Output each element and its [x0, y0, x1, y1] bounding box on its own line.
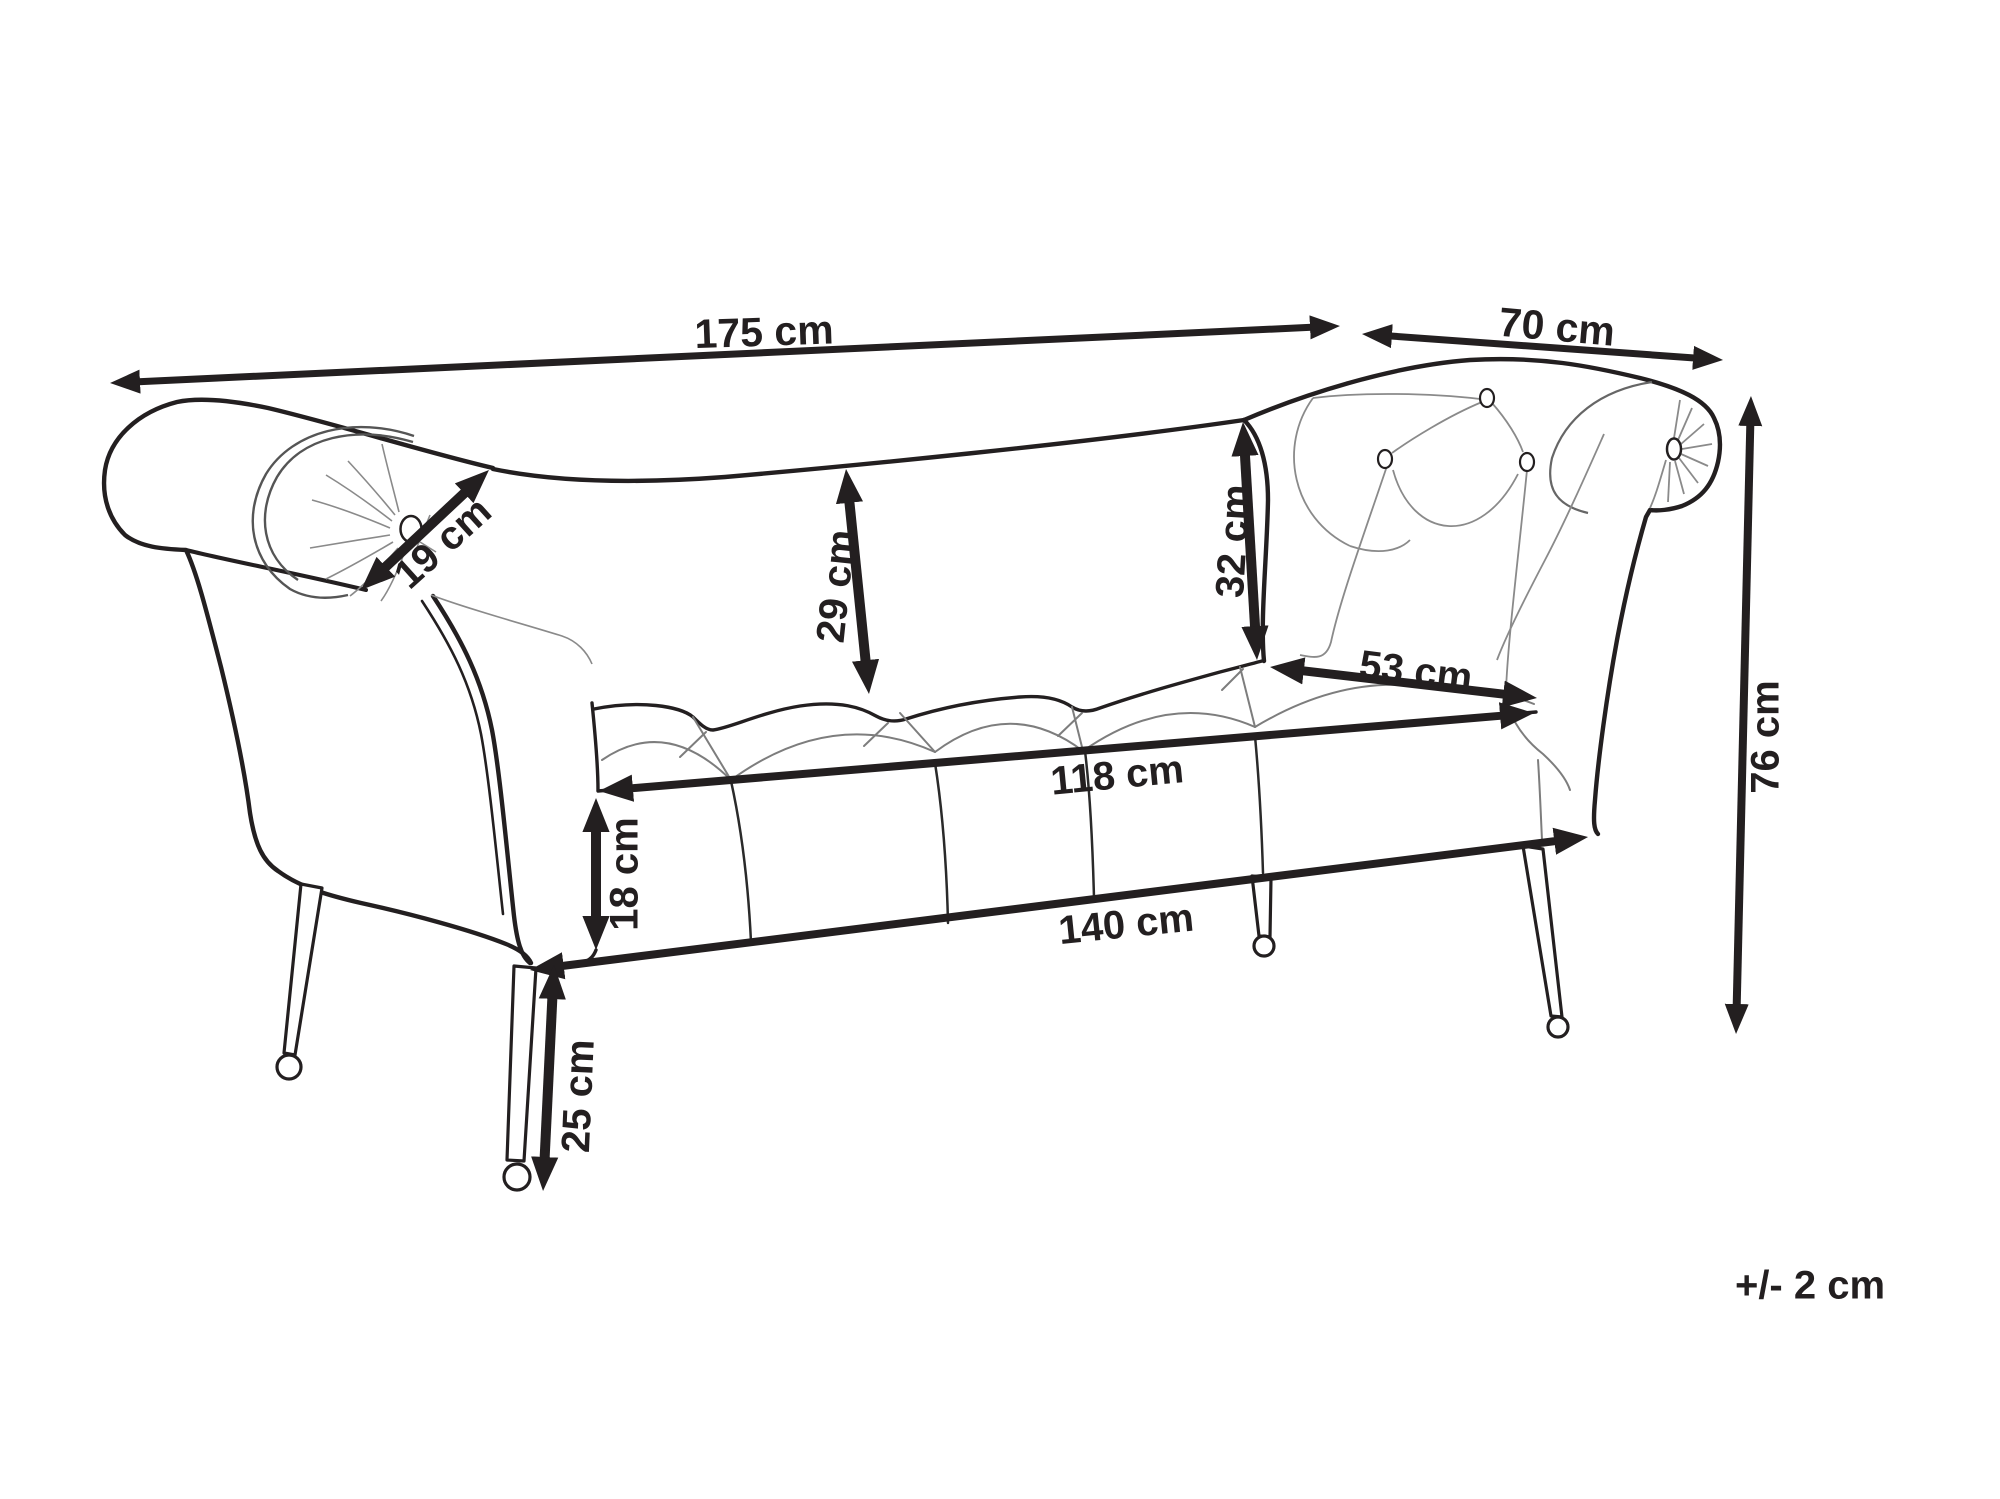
svg-text:18 cm: 18 cm	[602, 817, 646, 930]
svg-text:29 cm: 29 cm	[809, 527, 865, 644]
svg-text:32 cm: 32 cm	[1208, 483, 1259, 599]
svg-text:76 cm: 76 cm	[1743, 680, 1787, 793]
svg-text:175 cm: 175 cm	[694, 306, 835, 357]
svg-text:53 cm: 53 cm	[1357, 643, 1475, 700]
svg-text:+/- 2 cm: +/- 2 cm	[1735, 1263, 1885, 1307]
svg-text:25 cm: 25 cm	[554, 1038, 603, 1153]
svg-text:19 cm: 19 cm	[386, 489, 500, 598]
